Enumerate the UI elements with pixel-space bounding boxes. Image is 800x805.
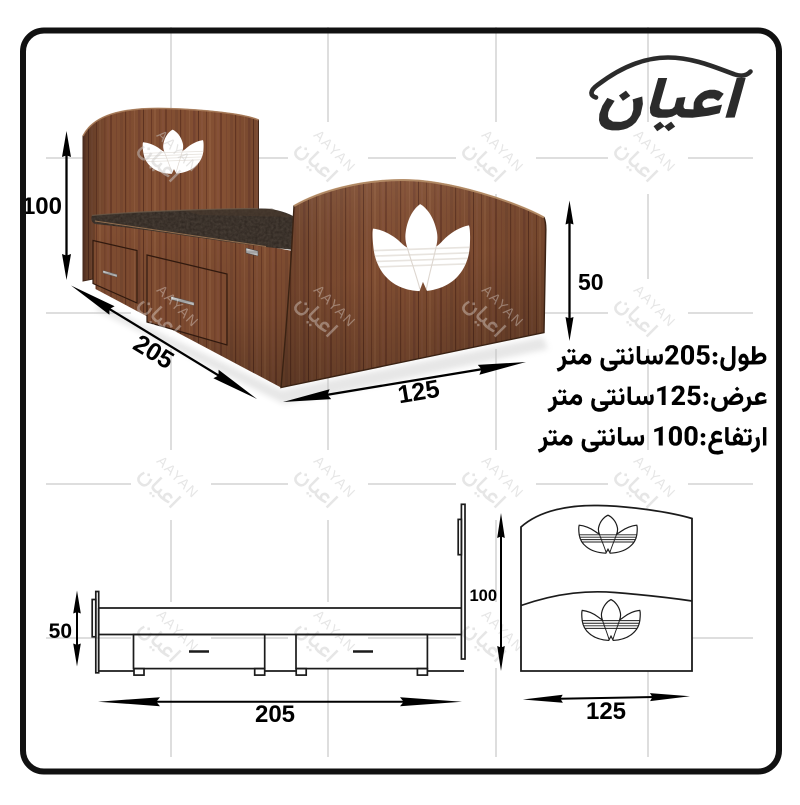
svg-text:50: 50 xyxy=(578,269,604,295)
svg-text:125: 125 xyxy=(586,698,626,725)
svg-text:100: 100 xyxy=(469,587,497,605)
svg-text:205: 205 xyxy=(255,701,295,728)
svg-text:50: 50 xyxy=(49,620,72,643)
svg-text:100: 100 xyxy=(22,193,62,220)
